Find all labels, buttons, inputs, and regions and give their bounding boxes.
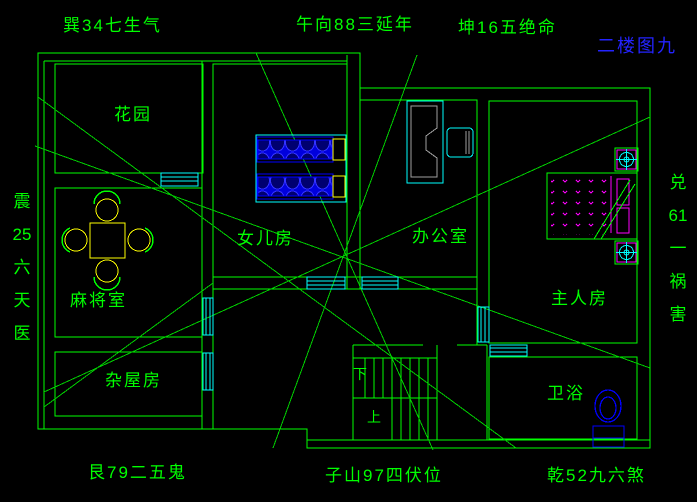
compass-label-zhen-column: 震 25 六 天 医 (6, 192, 38, 357)
room-label-bathroom: 卫浴 (547, 385, 585, 402)
compass-label-dui-column: 兑 61 一 祸 害 (662, 173, 694, 338)
room-label-master: 主人房 (551, 290, 608, 307)
compass-label-gen: 艮79二五鬼 (88, 464, 187, 481)
window-bathroom (490, 345, 527, 356)
window-garden (161, 173, 198, 186)
room-mahjong (55, 188, 202, 337)
room-label-storage: 杂屋房 (105, 372, 162, 389)
compass-label-wu: 午向88三延年 (296, 16, 414, 33)
mahjong-table-set (62, 191, 153, 290)
master-bed (547, 173, 637, 239)
office-chair (447, 128, 473, 157)
nightstand-lamp (615, 148, 638, 171)
floorplan-drawing (0, 0, 697, 502)
stair-label-down: 下 (353, 367, 367, 381)
window-office (362, 277, 398, 289)
room-label-garden: 花园 (114, 106, 152, 123)
room-label-daughter: 女儿房 (237, 230, 294, 247)
daughter-beds (256, 135, 346, 202)
room-label-office: 办公室 (412, 228, 469, 245)
window-master (478, 307, 489, 342)
office-desk (407, 101, 443, 183)
line-kun-gen (273, 55, 417, 448)
pillow (333, 176, 345, 197)
compass-label-xun: 巽34七生气 (63, 17, 162, 34)
room-label-mahjong: 麻将室 (70, 292, 127, 309)
compass-label-kun: 坤16五绝命 (458, 19, 557, 36)
stair-label-up: 上 (367, 410, 381, 424)
pillow (617, 208, 629, 233)
pillow (333, 139, 345, 160)
window-storage (203, 353, 213, 390)
compass-label-qian: 乾52九六煞 (547, 467, 646, 484)
cad-floorplan-canvas[interactable]: 巽34七生气 午向88三延年 坤16五绝命 二楼图九 艮79二五鬼 子山97四伏… (0, 0, 697, 502)
window-daughter (307, 277, 345, 289)
room-office (360, 100, 477, 277)
nightstand-lamp (615, 241, 638, 264)
compass-label-zi: 子山97四伏位 (325, 467, 443, 484)
windows (161, 173, 527, 390)
toilet (593, 390, 624, 447)
drawing-title: 二楼图九 (597, 37, 677, 55)
